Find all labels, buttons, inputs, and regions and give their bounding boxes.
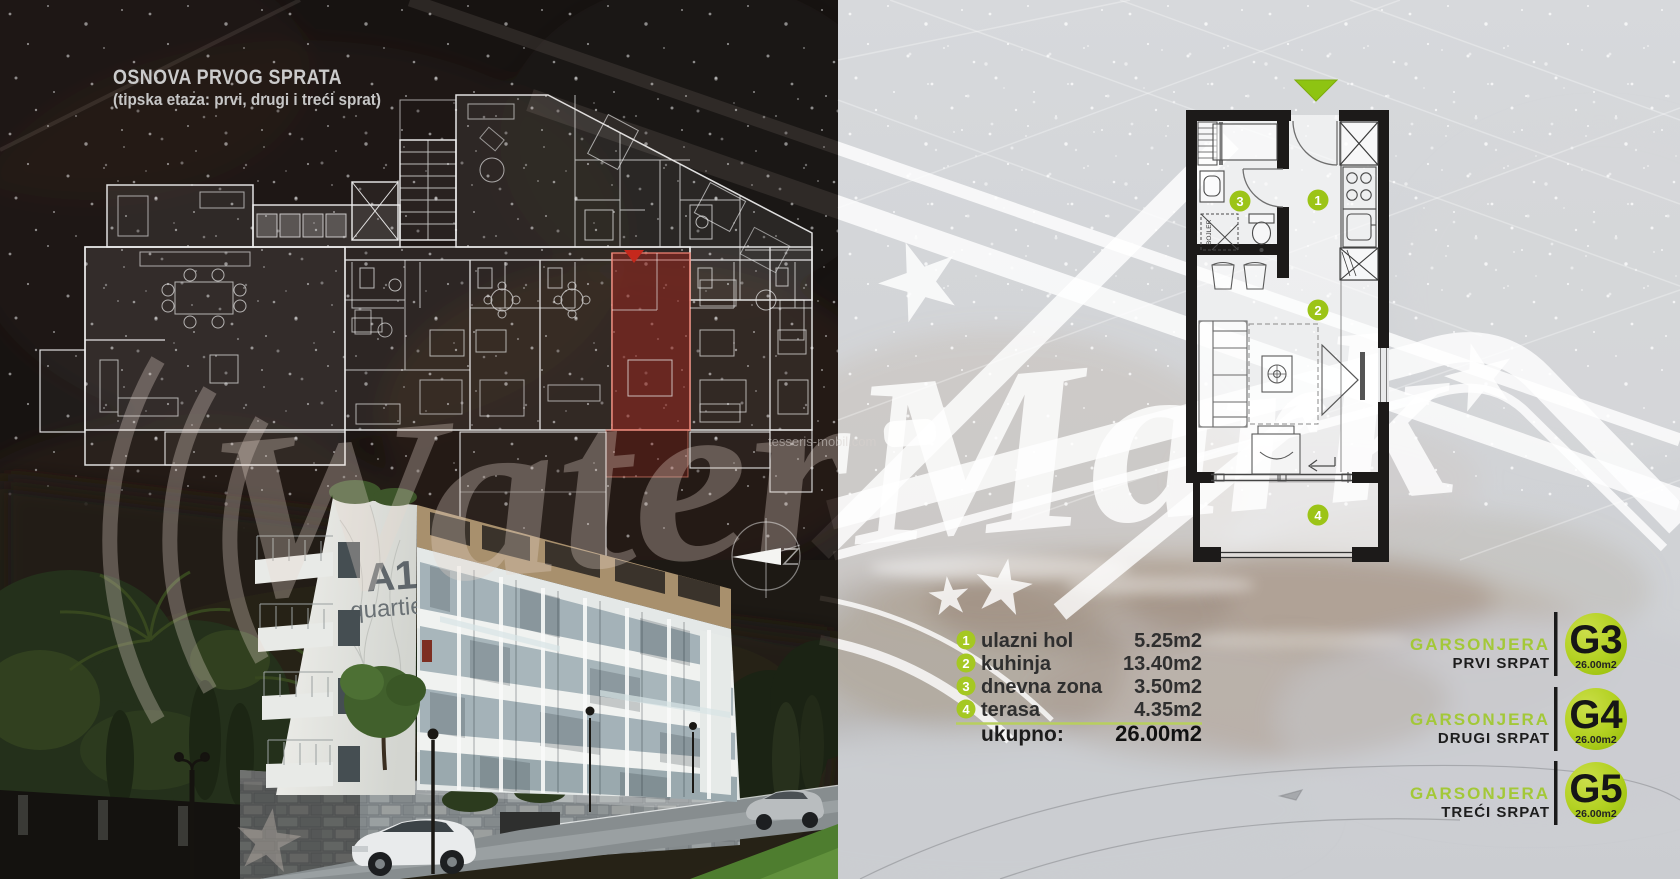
svg-text:2: 2 bbox=[1314, 303, 1321, 318]
svg-text:BOJLER: BOJLER bbox=[1206, 219, 1213, 245]
svg-text:26.00m2: 26.00m2 bbox=[1115, 721, 1202, 746]
svg-text:dnevna zona: dnevna zona bbox=[981, 676, 1103, 698]
svg-text:4: 4 bbox=[1314, 508, 1322, 523]
svg-text:26.00m2: 26.00m2 bbox=[1575, 808, 1617, 820]
svg-text:ulazni hol: ulazni hol bbox=[981, 630, 1073, 652]
svg-text:G4: G4 bbox=[1569, 693, 1623, 737]
svg-text:1: 1 bbox=[962, 633, 969, 648]
svg-text:terasa: terasa bbox=[981, 699, 1041, 721]
svg-text:3: 3 bbox=[1236, 194, 1243, 209]
svg-text:2: 2 bbox=[962, 656, 969, 671]
svg-text:OSNOVA PRVOG SPRATA: OSNOVA PRVOG SPRATA bbox=[113, 66, 342, 89]
svg-text:3: 3 bbox=[962, 679, 969, 694]
svg-text:13.40m2: 13.40m2 bbox=[1123, 653, 1202, 675]
svg-text:G3: G3 bbox=[1569, 618, 1622, 662]
svg-text:3.50m2: 3.50m2 bbox=[1134, 676, 1202, 698]
svg-text:26.00m2: 26.00m2 bbox=[1575, 659, 1617, 671]
svg-text:TREĆI SRPAT: TREĆI SRPAT bbox=[1441, 803, 1550, 821]
svg-text:DRUGI SRPAT: DRUGI SRPAT bbox=[1438, 730, 1550, 747]
svg-text:tesseris-mobil.com: tesseris-mobil.com bbox=[768, 434, 876, 449]
svg-text:4.35m2: 4.35m2 bbox=[1134, 699, 1202, 721]
svg-text:GARSONJERA: GARSONJERA bbox=[1410, 635, 1550, 654]
svg-text:GARSONJERA: GARSONJERA bbox=[1410, 784, 1550, 803]
svg-text:26.00m2: 26.00m2 bbox=[1575, 734, 1617, 746]
svg-text:kuhinja: kuhinja bbox=[981, 653, 1052, 675]
svg-text:4: 4 bbox=[962, 702, 970, 717]
svg-text:GARSONJERA: GARSONJERA bbox=[1410, 710, 1550, 729]
svg-text:G5: G5 bbox=[1569, 767, 1622, 811]
svg-text:(tipska etaza: prvi, drugi i t: (tipska etaza: prvi, drugi i treći sprat… bbox=[113, 90, 381, 109]
svg-text:1: 1 bbox=[1314, 193, 1321, 208]
svg-text:ukupno:: ukupno: bbox=[981, 723, 1064, 746]
svg-text:5.25m2: 5.25m2 bbox=[1134, 630, 1202, 652]
svg-text:PRVI SRPAT: PRVI SRPAT bbox=[1452, 655, 1550, 672]
